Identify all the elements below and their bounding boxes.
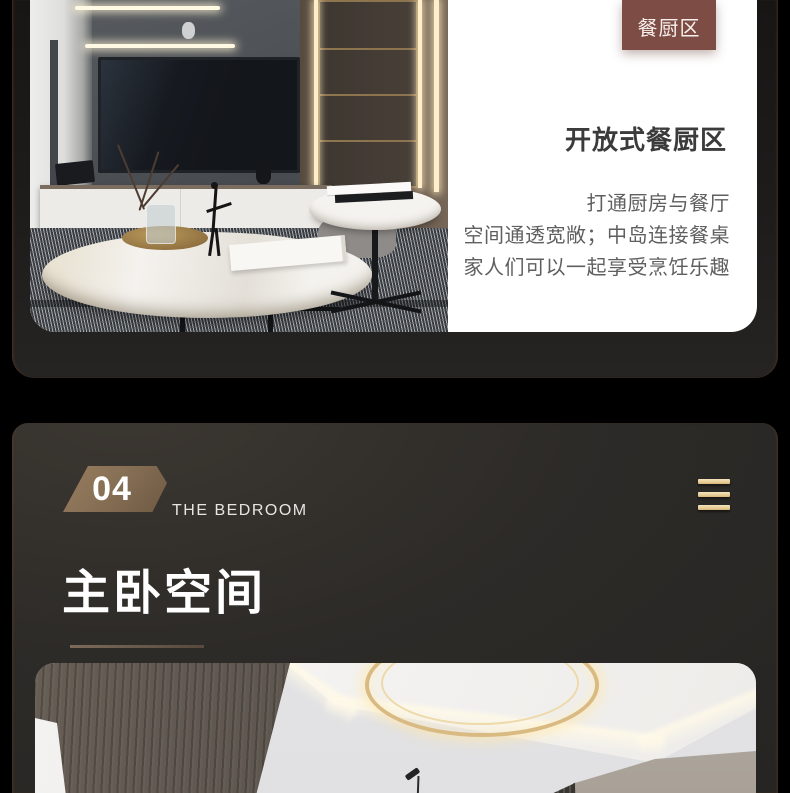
- section-gap: [0, 378, 790, 423]
- hamburger-menu-icon[interactable]: [698, 479, 730, 511]
- menu-bar: [698, 505, 730, 510]
- promo-page: 餐厨区 开放式餐厨区 打通厨房与餐厅 空间通透宽敞；中岛连接餐桌 家人们可以一起…: [0, 0, 790, 793]
- tv-cabinet: [40, 185, 332, 232]
- bedroom-title: 主卧空间: [62, 553, 266, 623]
- menu-bar: [698, 492, 730, 497]
- section-number: 04: [92, 470, 138, 509]
- section-eyebrow-label: THE BEDROOM: [172, 502, 308, 520]
- dining-description: 打通厨房与餐厅 空间通透宽敞；中岛连接餐桌 家人们可以一起享受烹饪乐趣: [464, 188, 731, 284]
- dining-text-column: 餐厨区 开放式餐厨区 打通厨房与餐厅 空间通透宽敞；中岛连接餐桌 家人们可以一起…: [448, 0, 757, 332]
- shelf-unit: [318, 0, 418, 188]
- tv-screen: [98, 57, 300, 173]
- dining-line-1: 打通厨房与餐厅: [587, 193, 731, 215]
- menu-bar: [698, 479, 730, 484]
- dining-section: 餐厨区 开放式餐厨区 打通厨房与餐厅 空间通透宽敞；中岛连接餐桌 家人们可以一起…: [12, 0, 778, 378]
- living-dining-room-photo: [30, 0, 448, 332]
- dining-line-2: 空间通透宽敞；中岛连接餐桌: [464, 225, 731, 247]
- dining-tag-badge: 餐厨区: [622, 0, 716, 50]
- master-bedroom-ceiling-photo: [35, 663, 756, 793]
- section-number-badge: 04: [63, 466, 167, 512]
- dining-card: 餐厨区 开放式餐厨区 打通厨房与餐厅 空间通透宽敞；中岛连接餐桌 家人们可以一起…: [30, 0, 757, 332]
- dining-line-3: 家人们可以一起享受烹饪乐趣: [464, 257, 731, 279]
- bedroom-section: 04 THE BEDROOM 主卧空间: [12, 423, 778, 793]
- dining-heading: 开放式餐厨区: [565, 120, 727, 157]
- title-divider: [70, 645, 204, 648]
